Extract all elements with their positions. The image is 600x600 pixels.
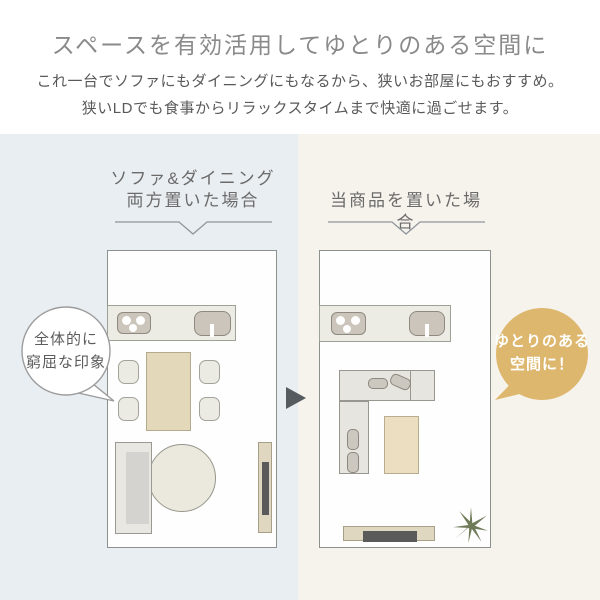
tv-board xyxy=(343,526,435,541)
before-heading-underline xyxy=(115,221,273,237)
round-rug xyxy=(148,444,216,512)
stove-icon xyxy=(331,312,366,335)
floorplan-after xyxy=(319,250,491,548)
chair xyxy=(199,397,220,421)
sink-icon xyxy=(194,311,231,336)
corner-sofa-top xyxy=(339,370,435,401)
after-heading-underline xyxy=(328,221,486,237)
subtitle-line-2: 狭いLDでも食事からリラックスタイムまで快適に過ごせます。 xyxy=(0,97,600,118)
before-bubble-text: 全体的に 窮屈な印象 xyxy=(16,328,116,374)
subtitle-line-1: これ一台でソファにもダイニングにもなるから、狭いお部屋にもおすすめ。 xyxy=(0,70,600,91)
tv-screen xyxy=(262,462,269,515)
plant-icon xyxy=(452,506,490,544)
after-bubble-text: ゆとりのある 空間に！ xyxy=(492,330,592,376)
burner-icon xyxy=(136,316,145,325)
before-heading-line-2: 両方置いた場合 xyxy=(108,190,278,212)
corner-sofa-side xyxy=(339,401,369,474)
after-bubble-line-1: ゆとりのある xyxy=(492,330,592,353)
low-table xyxy=(384,416,419,474)
tv-board xyxy=(258,442,272,533)
chair xyxy=(118,360,139,384)
burner-icon xyxy=(336,316,345,325)
chair xyxy=(118,397,139,421)
burner-icon xyxy=(129,324,137,332)
faucet-icon xyxy=(425,324,429,337)
tv-screen xyxy=(363,531,417,542)
arrow-right-icon xyxy=(286,387,306,409)
cushion xyxy=(347,452,359,473)
stove-icon xyxy=(117,312,151,334)
cushion xyxy=(368,378,388,389)
burner-icon xyxy=(343,325,351,333)
after-bubble-line-2: 空間に！ xyxy=(492,353,592,376)
before-bubble-line-1: 全体的に xyxy=(16,328,116,351)
dining-table xyxy=(146,352,191,431)
sink-icon xyxy=(409,311,445,336)
burner-icon xyxy=(351,316,360,325)
sofa-seat xyxy=(126,452,149,524)
faucet-icon xyxy=(210,324,214,337)
cushion xyxy=(347,429,359,450)
before-heading-line-1: ソファ&ダイニング xyxy=(108,168,278,190)
sofa xyxy=(115,442,152,534)
cushion xyxy=(388,372,412,392)
page: スペースを有効活用してゆとりのある空間に これ一台でソファにもダイニングにもなる… xyxy=(0,0,600,600)
before-heading: ソファ&ダイニング 両方置いた場合 xyxy=(108,168,278,212)
floorplan-before xyxy=(107,250,277,548)
page-title: スペースを有効活用してゆとりのある空間に xyxy=(0,26,600,60)
burner-icon xyxy=(122,316,131,325)
before-bubble-line-2: 窮屈な印象 xyxy=(16,351,116,374)
chair xyxy=(199,360,220,384)
